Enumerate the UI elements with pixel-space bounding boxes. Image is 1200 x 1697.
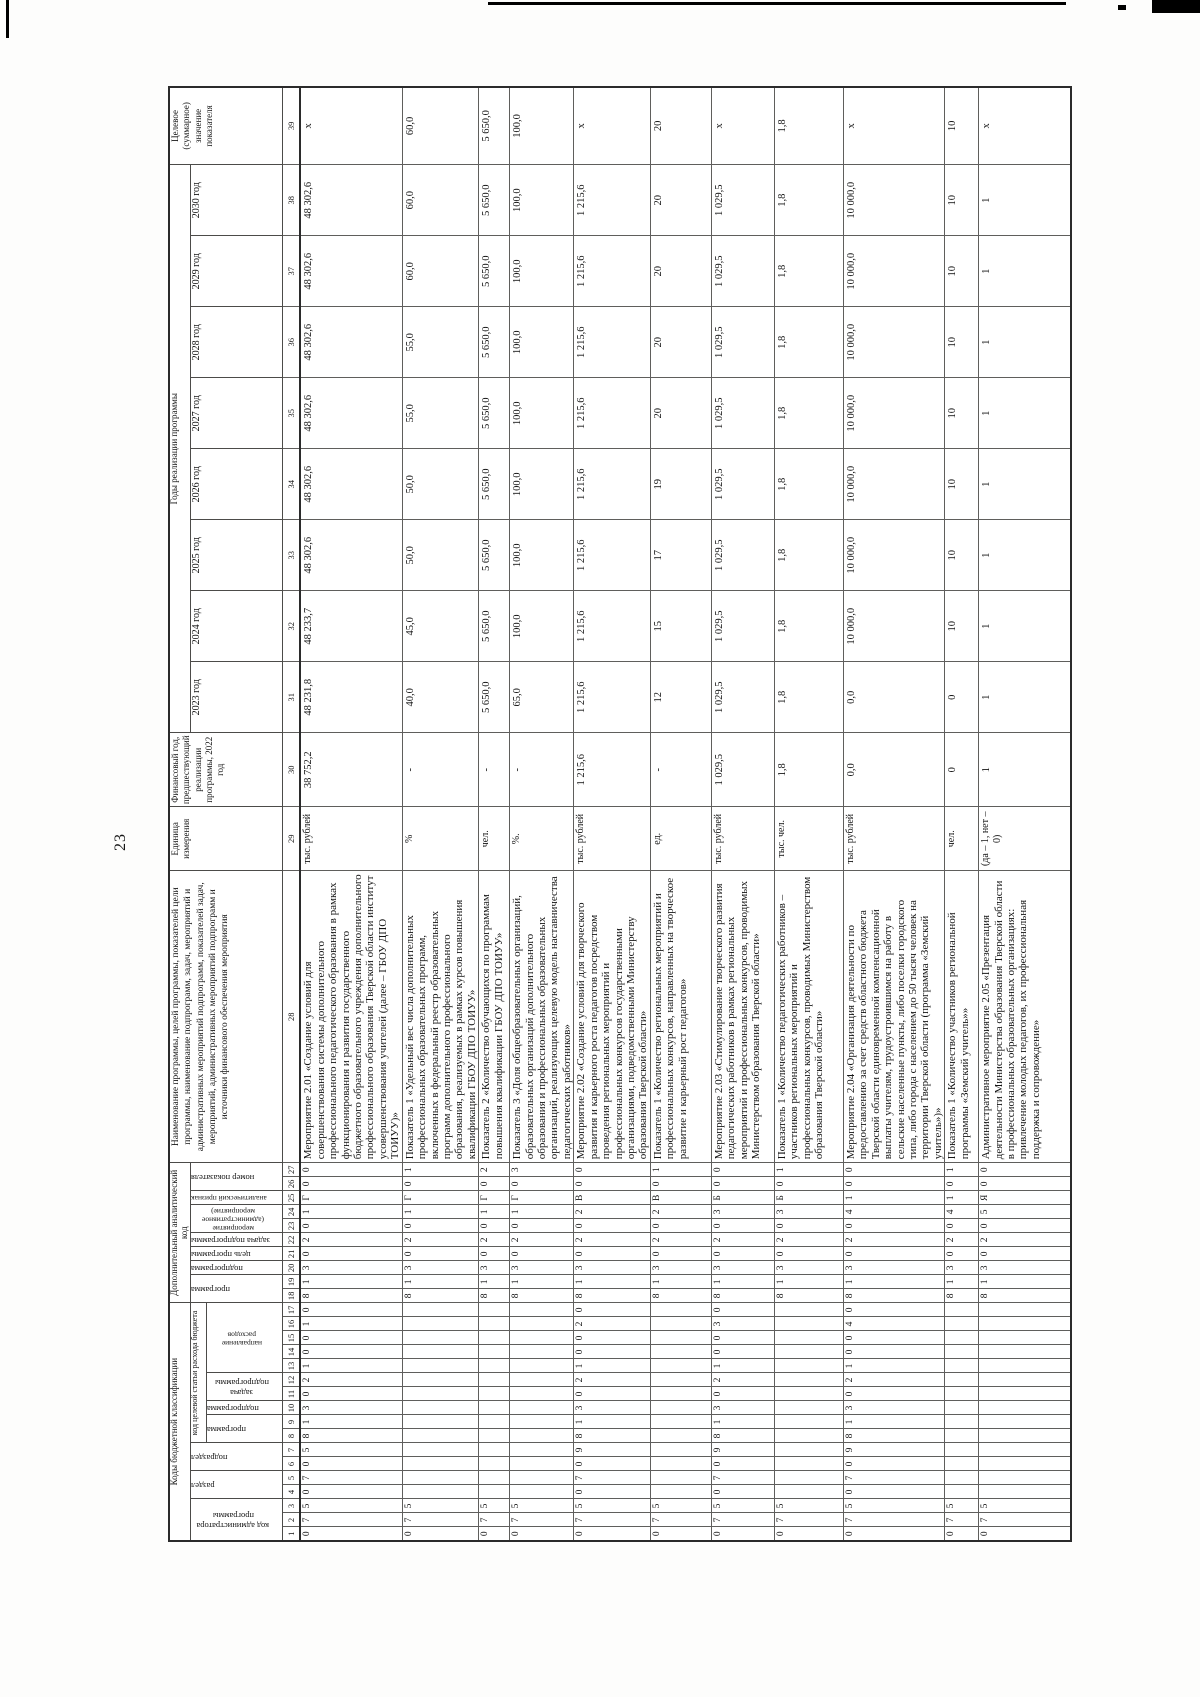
code-cell: 0 — [300, 1331, 402, 1345]
table-row: 075070981302100408130204100Мероприятие 2… — [843, 87, 944, 1541]
code-cell — [479, 1485, 510, 1499]
name-cell: Показатель 2 «Количество обучающихся по … — [479, 871, 510, 1163]
column-number: 39 — [282, 87, 300, 165]
table-row: 0758130201Г02Показатель 2 «Количество об… — [479, 87, 510, 1541]
value-cell: 0,0 — [843, 662, 944, 733]
code-cell: 8 — [774, 1289, 843, 1303]
code-cell — [774, 1429, 843, 1443]
code-cell — [979, 1331, 1071, 1345]
ta-napravlenie-header: направление расходов — [206, 1303, 282, 1373]
year-header-2029: 2029 год — [190, 236, 282, 307]
column-numbers-row: 1234567891011121314151617181920212223242… — [282, 87, 300, 1541]
ta-podprogramma-header: подпрограмма — [206, 1401, 282, 1415]
code-cell: 3 — [774, 1261, 843, 1275]
code-cell — [945, 1303, 979, 1317]
code-cell — [650, 1471, 711, 1485]
code-cell: 3 — [711, 1401, 774, 1415]
value-cell: 1 029,5 — [711, 378, 774, 449]
code-cell: 1 — [774, 1275, 843, 1289]
code-cell: 8 — [650, 1289, 711, 1303]
code-cell — [510, 1303, 574, 1317]
value-cell: 100,0 — [510, 236, 574, 307]
value-cell: 45,0 — [402, 591, 479, 662]
code-cell: 0 — [510, 1219, 574, 1233]
column-number: 35 — [282, 378, 300, 449]
value-cell: 1 215,6 — [574, 520, 651, 591]
column-number: 24 — [282, 1205, 300, 1219]
code-cell: 0 — [774, 1219, 843, 1233]
code-cell — [650, 1485, 711, 1499]
code-cell: 1 — [650, 1275, 711, 1289]
code-cell: 2 — [650, 1233, 711, 1247]
column-number: 31 — [282, 662, 300, 733]
target-value-cell: x — [979, 87, 1071, 165]
value-cell: 100,0 — [510, 591, 574, 662]
code-cell: 0 — [479, 1177, 510, 1191]
value-cell: 65,0 — [510, 662, 574, 733]
year-header-2030: 2030 год — [190, 165, 282, 236]
code-cell — [945, 1401, 979, 1415]
code-cell: 0 — [574, 1303, 651, 1317]
unit-cell: тыс. рублей — [711, 807, 774, 871]
target-value-cell: x — [300, 87, 402, 165]
code-cell: 2 — [510, 1233, 574, 1247]
code-cell — [979, 1457, 1071, 1471]
code-cell: 0 — [711, 1331, 774, 1345]
value-cell: 1 215,6 — [574, 662, 651, 733]
code-cell — [479, 1317, 510, 1331]
value-cell: 17 — [650, 520, 711, 591]
column-number: 6 — [282, 1457, 300, 1471]
column-number: 23 — [282, 1219, 300, 1233]
scan-artifact-top-dot — [1118, 5, 1126, 10]
code-cell: 7 — [574, 1513, 651, 1527]
code-cell: 8 — [843, 1429, 944, 1443]
value-cell: 48 231,8 — [300, 662, 402, 733]
column-number: 27 — [282, 1163, 300, 1177]
name-cell: Показатель 1 «Количество региональных ме… — [650, 871, 711, 1163]
code-cell — [650, 1457, 711, 1471]
code-cell — [650, 1415, 711, 1429]
column-number: 26 — [282, 1177, 300, 1191]
code-cell: 2 — [300, 1233, 402, 1247]
code-cell — [402, 1415, 479, 1429]
target-column-header: Целевое (суммарное) значение показателя — [169, 87, 282, 165]
code-cell — [945, 1415, 979, 1429]
analytic-tsel-header: цель программы — [190, 1247, 282, 1261]
code-cell: 0 — [574, 1485, 651, 1499]
code-cell: 0 — [843, 1485, 944, 1499]
column-number: 17 — [282, 1303, 300, 1317]
value-cell: 1 215,6 — [574, 165, 651, 236]
code-cell: 0 — [574, 1345, 651, 1359]
code-cell: 7 — [650, 1513, 711, 1527]
value-cell: 1 029,5 — [711, 449, 774, 520]
target-value-cell: 20 — [650, 87, 711, 165]
code-cell — [479, 1471, 510, 1485]
code-cell: 0 — [843, 1331, 944, 1345]
code-cell: 1 — [300, 1205, 402, 1219]
code-cell: 0 — [843, 1345, 944, 1359]
code-cell: 0 — [711, 1387, 774, 1401]
value-cell: 19 — [650, 449, 711, 520]
code-cell: 5 — [774, 1499, 843, 1513]
code-cell: 3 — [510, 1163, 574, 1177]
value-cell: 10 — [945, 378, 979, 449]
code-cell — [774, 1415, 843, 1429]
code-cell — [650, 1429, 711, 1443]
unit-column-header: Единица измерения — [169, 807, 282, 871]
code-cell: 0 — [843, 1177, 944, 1191]
column-number: 30 — [282, 733, 300, 807]
code-cell: 0 — [300, 1457, 402, 1471]
code-cell — [650, 1373, 711, 1387]
code-cell: 8 — [574, 1429, 651, 1443]
value-cell: 5 650,0 — [479, 662, 510, 733]
code-cell: 1 — [402, 1205, 479, 1219]
code-cell: 5 — [979, 1499, 1071, 1513]
code-cell: Г — [300, 1191, 402, 1205]
code-cell: 5 — [402, 1499, 479, 1513]
code-cell: 1 — [979, 1275, 1071, 1289]
code-cell — [979, 1359, 1071, 1373]
target-value-cell: 10 — [945, 87, 979, 165]
code-cell — [979, 1443, 1071, 1457]
code-cell: 0 — [979, 1163, 1071, 1177]
value-cell: 1 215,6 — [574, 307, 651, 378]
code-cell — [510, 1317, 574, 1331]
code-cell: 0 — [774, 1527, 843, 1541]
name-cell: Мероприятие 2.04 «Организация деятельнос… — [843, 871, 944, 1163]
code-cell: 7 — [843, 1513, 944, 1527]
value-cell: 10 000,0 — [843, 449, 944, 520]
code-cell — [402, 1373, 479, 1387]
column-number: 13 — [282, 1359, 300, 1373]
code-cell: 0 — [945, 1527, 979, 1541]
value-cell: 55,0 — [402, 307, 479, 378]
code-cell: 0 — [945, 1219, 979, 1233]
code-cell: 0 — [300, 1527, 402, 1541]
code-cell — [510, 1359, 574, 1373]
code-cell: В — [650, 1191, 711, 1205]
value-cell: 1,8 — [774, 662, 843, 733]
code-cell: 1 — [945, 1275, 979, 1289]
code-cell: 1 — [945, 1163, 979, 1177]
code-cell — [774, 1373, 843, 1387]
code-cell — [774, 1471, 843, 1485]
code-cell: 7 — [711, 1513, 774, 1527]
code-cell: 0 — [979, 1527, 1071, 1541]
code-cell: 7 — [979, 1513, 1071, 1527]
name-cell: Показатель 3 «Доля общеобразовательных о… — [510, 871, 574, 1163]
code-cell: 0 — [300, 1163, 402, 1177]
code-cell — [945, 1317, 979, 1331]
scan-artifact-top-line — [488, 2, 1066, 5]
value-cell: 100,0 — [510, 307, 574, 378]
code-cell — [479, 1373, 510, 1387]
code-cell: 0 — [774, 1247, 843, 1261]
code-cell: 2 — [479, 1233, 510, 1247]
value-cell: 60,0 — [402, 165, 479, 236]
code-cell: 2 — [574, 1373, 651, 1387]
code-cell: 7 — [510, 1513, 574, 1527]
code-cell — [774, 1345, 843, 1359]
unit-cell: ед. — [650, 807, 711, 871]
value-cell: 1,8 — [774, 520, 843, 591]
value-cell: 100,0 — [510, 449, 574, 520]
code-cell: 0 — [650, 1219, 711, 1233]
value-cell: 100,0 — [510, 520, 574, 591]
code-cell — [510, 1373, 574, 1387]
code-cell: 2 — [479, 1163, 510, 1177]
name-column-header: Наименование программы, целей программы,… — [169, 871, 282, 1163]
code-cell — [945, 1387, 979, 1401]
unit-cell: тыс. рублей — [843, 807, 944, 871]
column-number: 15 — [282, 1331, 300, 1345]
value-cell: 10 — [945, 520, 979, 591]
code-cell — [402, 1429, 479, 1443]
year-header-2024: 2024 год — [190, 591, 282, 662]
value-cell: 1 029,5 — [711, 236, 774, 307]
column-number: 38 — [282, 165, 300, 236]
code-cell: 2 — [300, 1373, 402, 1387]
code-cell: 1 — [711, 1415, 774, 1429]
code-cell: 3 — [574, 1401, 651, 1415]
code-cell: 0 — [574, 1177, 651, 1191]
code-cell: 3 — [945, 1261, 979, 1275]
unit-cell: тыс. рублей — [300, 807, 402, 871]
code-cell: 7 — [774, 1513, 843, 1527]
column-number: 9 — [282, 1415, 300, 1429]
code-cell — [479, 1359, 510, 1373]
code-cell: 0 — [300, 1219, 402, 1233]
column-number: 33 — [282, 520, 300, 591]
analytic-priznak-header: аналитический признак — [190, 1191, 282, 1205]
code-cell: 0 — [843, 1457, 944, 1471]
value-cell: 10 000,0 — [843, 165, 944, 236]
code-cell: 5 — [843, 1499, 944, 1513]
code-cell — [979, 1345, 1071, 1359]
code-cell: 0 — [843, 1163, 944, 1177]
code-cell: 1 — [510, 1205, 574, 1219]
value-cell: 0 — [945, 733, 979, 807]
table-natural-orientation: Коды бюджетной классификации Дополнитель… — [168, 88, 1020, 1542]
code-cell: 7 — [945, 1513, 979, 1527]
code-cell — [979, 1373, 1071, 1387]
unit-cell: чел. — [945, 807, 979, 871]
code-cell — [479, 1443, 510, 1457]
code-cell — [479, 1401, 510, 1415]
year-header-2026: 2026 год — [190, 449, 282, 520]
code-cell — [979, 1387, 1071, 1401]
code-cell: 1 — [300, 1415, 402, 1429]
code-cell: 3 — [843, 1401, 944, 1415]
code-cell: 3 — [774, 1205, 843, 1219]
target-value-cell: 100,0 — [510, 87, 574, 165]
table-row: 0758130205Я00Административное мероприяти… — [979, 87, 1071, 1541]
code-cell — [510, 1331, 574, 1345]
code-cell: 5 — [300, 1499, 402, 1513]
code-cell: 5 — [711, 1499, 774, 1513]
code-cell — [979, 1415, 1071, 1429]
code-cell — [510, 1401, 574, 1415]
admin-code-header: код администратора программы — [190, 1499, 282, 1541]
value-cell: 10 — [945, 165, 979, 236]
table-body: 075070581302100108130201Г00Мероприятие 2… — [300, 87, 1070, 1541]
name-cell: Мероприятие 2.02 «Создание условий для т… — [574, 871, 651, 1163]
code-cell: 3 — [843, 1261, 944, 1275]
code-cell — [945, 1359, 979, 1373]
code-cell: 0 — [300, 1387, 402, 1401]
budget-codes-banner: Коды бюджетной классификации — [169, 1303, 190, 1541]
code-cell — [945, 1345, 979, 1359]
column-number: 25 — [282, 1191, 300, 1205]
column-number: 8 — [282, 1429, 300, 1443]
column-number: 4 — [282, 1485, 300, 1499]
unit-cell: %. — [510, 807, 574, 871]
value-cell: 48 302,6 — [300, 307, 402, 378]
code-cell: Г — [510, 1191, 574, 1205]
value-cell: 10 — [945, 307, 979, 378]
code-cell — [402, 1457, 479, 1471]
code-cell: Г — [479, 1191, 510, 1205]
code-cell — [402, 1443, 479, 1457]
code-cell: 8 — [300, 1429, 402, 1443]
code-cell: 2 — [774, 1233, 843, 1247]
code-cell: 0 — [479, 1527, 510, 1541]
table-row: 0758130204101Показатель 1 «Количество уч… — [945, 87, 979, 1541]
code-cell: 0 — [402, 1177, 479, 1191]
code-cell: 0 — [402, 1527, 479, 1541]
target-value-cell: 60,0 — [402, 87, 479, 165]
code-cell: 0 — [510, 1247, 574, 1261]
code-cell: 1 — [402, 1163, 479, 1177]
code-cell — [774, 1331, 843, 1345]
code-cell — [402, 1303, 479, 1317]
year-header-2023: 2023 год — [190, 662, 282, 733]
analytic-programma-header: программа — [190, 1275, 282, 1303]
value-cell: 10 000,0 — [843, 520, 944, 591]
code-cell: 8 — [402, 1289, 479, 1303]
code-cell: 7 — [574, 1471, 651, 1485]
code-cell — [402, 1485, 479, 1499]
code-cell: 0 — [479, 1247, 510, 1261]
code-cell: 8 — [711, 1429, 774, 1443]
table-row: 075070981302100208130202В00Мероприятие 2… — [574, 87, 651, 1541]
value-cell: 50,0 — [402, 449, 479, 520]
value-cell: 5 650,0 — [479, 520, 510, 591]
column-number: 32 — [282, 591, 300, 662]
target-value-cell: x — [843, 87, 944, 165]
code-cell: 0 — [402, 1247, 479, 1261]
value-cell: 15 — [650, 591, 711, 662]
code-cell: 0 — [843, 1527, 944, 1541]
code-cell — [510, 1485, 574, 1499]
code-cell: 7 — [300, 1513, 402, 1527]
scan-artifact-left-line — [6, 0, 9, 38]
code-cell: 0 — [574, 1219, 651, 1233]
value-cell: 1 — [979, 520, 1071, 591]
column-number: 28 — [282, 871, 300, 1163]
code-cell — [650, 1443, 711, 1457]
code-cell: 2 — [843, 1373, 944, 1387]
column-number: 37 — [282, 236, 300, 307]
code-cell: 0 — [574, 1163, 651, 1177]
column-number: 2 — [282, 1513, 300, 1527]
code-cell — [650, 1331, 711, 1345]
table-row: 0758130203Б01Показатель 1 «Количество пе… — [774, 87, 843, 1541]
code-cell — [979, 1401, 1071, 1415]
code-cell: 9 — [574, 1443, 651, 1457]
name-cell: Мероприятие 2.03 «Стимулирование творчес… — [711, 871, 774, 1163]
header-row-banners: Коды бюджетной классификации Дополнитель… — [169, 87, 190, 1541]
value-cell: 1 029,5 — [711, 307, 774, 378]
value-cell: 20 — [650, 307, 711, 378]
name-cell: Мероприятие 2.01 «Создание условий для с… — [300, 871, 402, 1163]
value-cell: 0 — [945, 662, 979, 733]
code-cell: 2 — [979, 1233, 1071, 1247]
value-cell: 5 650,0 — [479, 378, 510, 449]
code-cell: 7 — [479, 1513, 510, 1527]
code-cell — [945, 1485, 979, 1499]
code-cell: 0 — [843, 1387, 944, 1401]
unit-cell: тыс. рублей — [574, 807, 651, 871]
column-number: 7 — [282, 1443, 300, 1457]
code-cell: 7 — [711, 1471, 774, 1485]
value-cell: 1,8 — [774, 733, 843, 807]
code-cell: 4 — [843, 1317, 944, 1331]
column-number: 5 — [282, 1471, 300, 1485]
code-cell — [774, 1485, 843, 1499]
value-cell: 1 029,5 — [711, 591, 774, 662]
code-cell: В — [574, 1191, 651, 1205]
value-cell: 60,0 — [402, 236, 479, 307]
code-cell: 2 — [711, 1373, 774, 1387]
code-cell — [774, 1303, 843, 1317]
unit-cell: тыс. чел. — [774, 807, 843, 871]
code-cell — [774, 1457, 843, 1471]
code-cell — [510, 1471, 574, 1485]
value-cell: 5 650,0 — [479, 307, 510, 378]
target-value-cell: 5 650,0 — [479, 87, 510, 165]
code-cell: 3 — [402, 1261, 479, 1275]
code-cell: 8 — [574, 1289, 651, 1303]
code-cell: 0 — [510, 1527, 574, 1541]
code-cell: 0 — [711, 1177, 774, 1191]
code-cell: 5 — [945, 1499, 979, 1513]
code-cell — [945, 1429, 979, 1443]
code-cell: 3 — [574, 1261, 651, 1275]
code-cell: 0 — [300, 1177, 402, 1191]
value-cell: 1 — [979, 662, 1071, 733]
code-cell — [479, 1303, 510, 1317]
year-header-2028: 2028 год — [190, 307, 282, 378]
code-cell: 0 — [711, 1219, 774, 1233]
column-number: 1 — [282, 1527, 300, 1541]
unit-cell: % — [402, 807, 479, 871]
value-cell: 20 — [650, 378, 711, 449]
value-cell: 48 302,6 — [300, 378, 402, 449]
code-cell — [650, 1359, 711, 1373]
value-cell: 1 029,5 — [711, 165, 774, 236]
table-row: 0758130202В01Показатель 1 «Количество ре… — [650, 87, 711, 1541]
value-cell: 1,8 — [774, 378, 843, 449]
code-cell: 5 — [650, 1499, 711, 1513]
code-cell: 3 — [300, 1401, 402, 1415]
code-cell — [402, 1387, 479, 1401]
code-cell — [650, 1317, 711, 1331]
value-cell: 1 — [979, 378, 1071, 449]
